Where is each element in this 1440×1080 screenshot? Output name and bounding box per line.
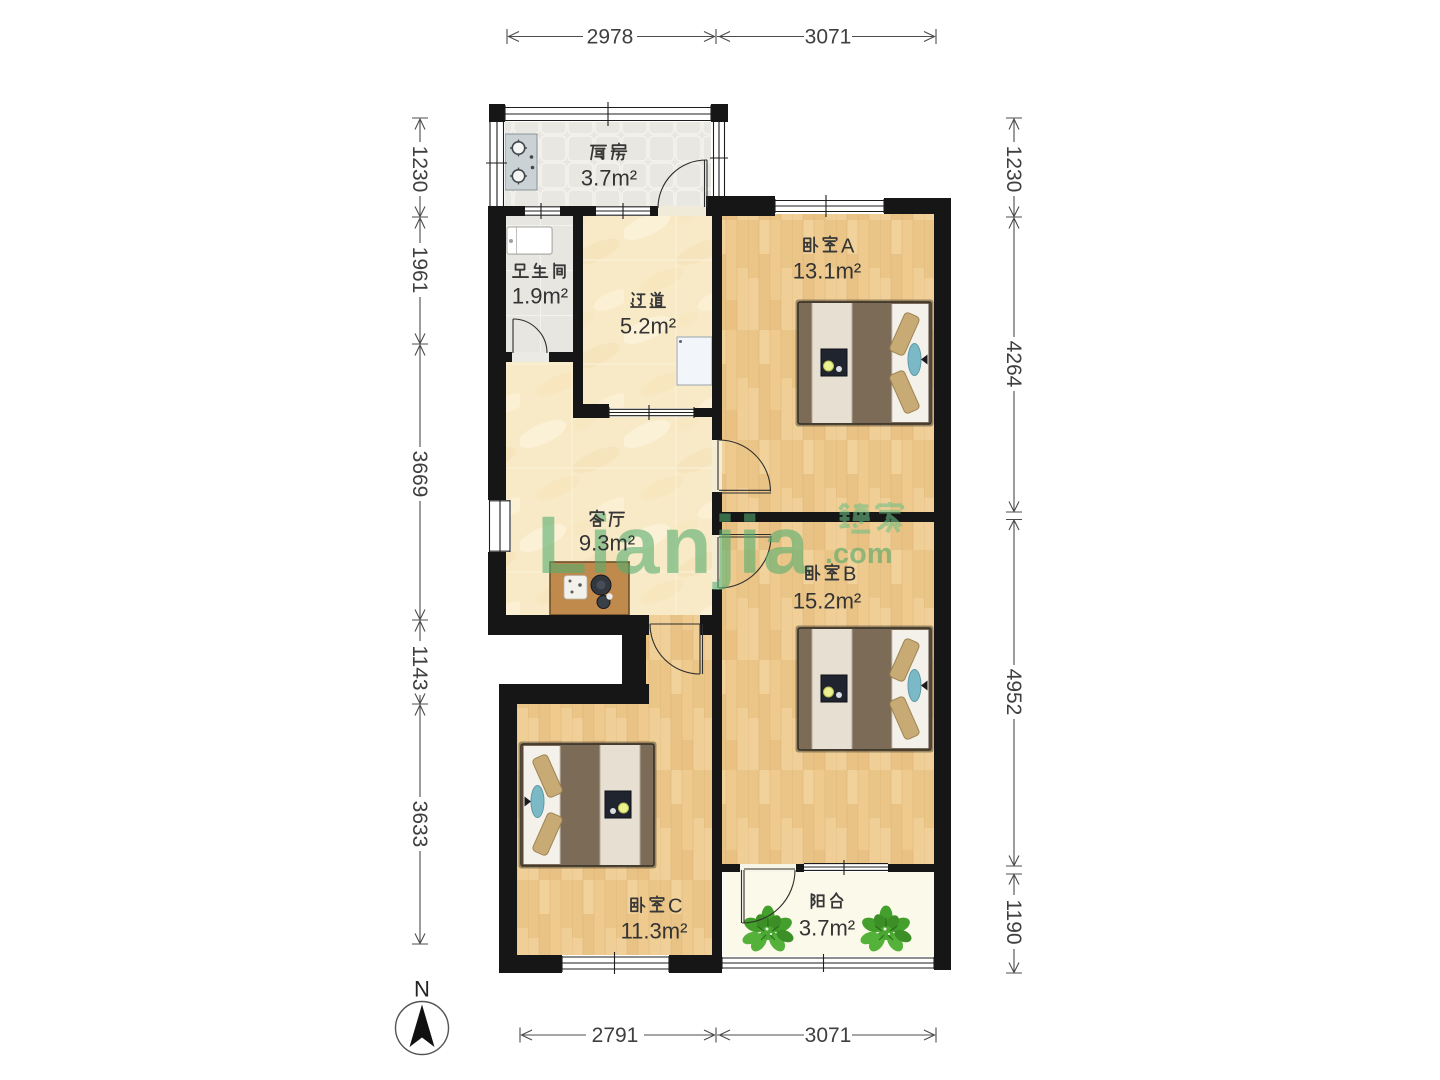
svg-text:1230: 1230 <box>1002 146 1025 193</box>
svg-text:1190: 1190 <box>1002 899 1025 944</box>
svg-text:13.1m²: 13.1m² <box>793 259 861 284</box>
svg-text:15.2m²: 15.2m² <box>793 589 861 614</box>
svg-text:5.2m²: 5.2m² <box>620 314 676 339</box>
svg-text:N: N <box>414 977 430 1002</box>
svg-text:C: C <box>668 896 682 918</box>
svg-text:9.3m²: 9.3m² <box>579 531 635 556</box>
svg-text:3669: 3669 <box>408 451 431 498</box>
svg-text:2791: 2791 <box>592 1024 639 1047</box>
svg-text:1143: 1143 <box>408 645 431 690</box>
svg-text:4264: 4264 <box>1002 341 1025 388</box>
svg-text:B: B <box>843 564 856 586</box>
svg-text:1.9m²: 1.9m² <box>512 284 568 309</box>
svg-text:1230: 1230 <box>408 146 431 193</box>
svg-text:3071: 3071 <box>805 1024 852 1047</box>
svg-text:11.3m²: 11.3m² <box>621 919 688 944</box>
svg-text:A: A <box>841 236 855 258</box>
svg-text:3.7m²: 3.7m² <box>581 166 637 191</box>
svg-text:1961: 1961 <box>408 247 431 294</box>
svg-text:3633: 3633 <box>408 801 431 848</box>
svg-text:2978: 2978 <box>587 26 634 49</box>
svg-text:3071: 3071 <box>805 26 852 49</box>
svg-text:4952: 4952 <box>1002 669 1025 716</box>
svg-text:3.7m²: 3.7m² <box>799 916 855 941</box>
